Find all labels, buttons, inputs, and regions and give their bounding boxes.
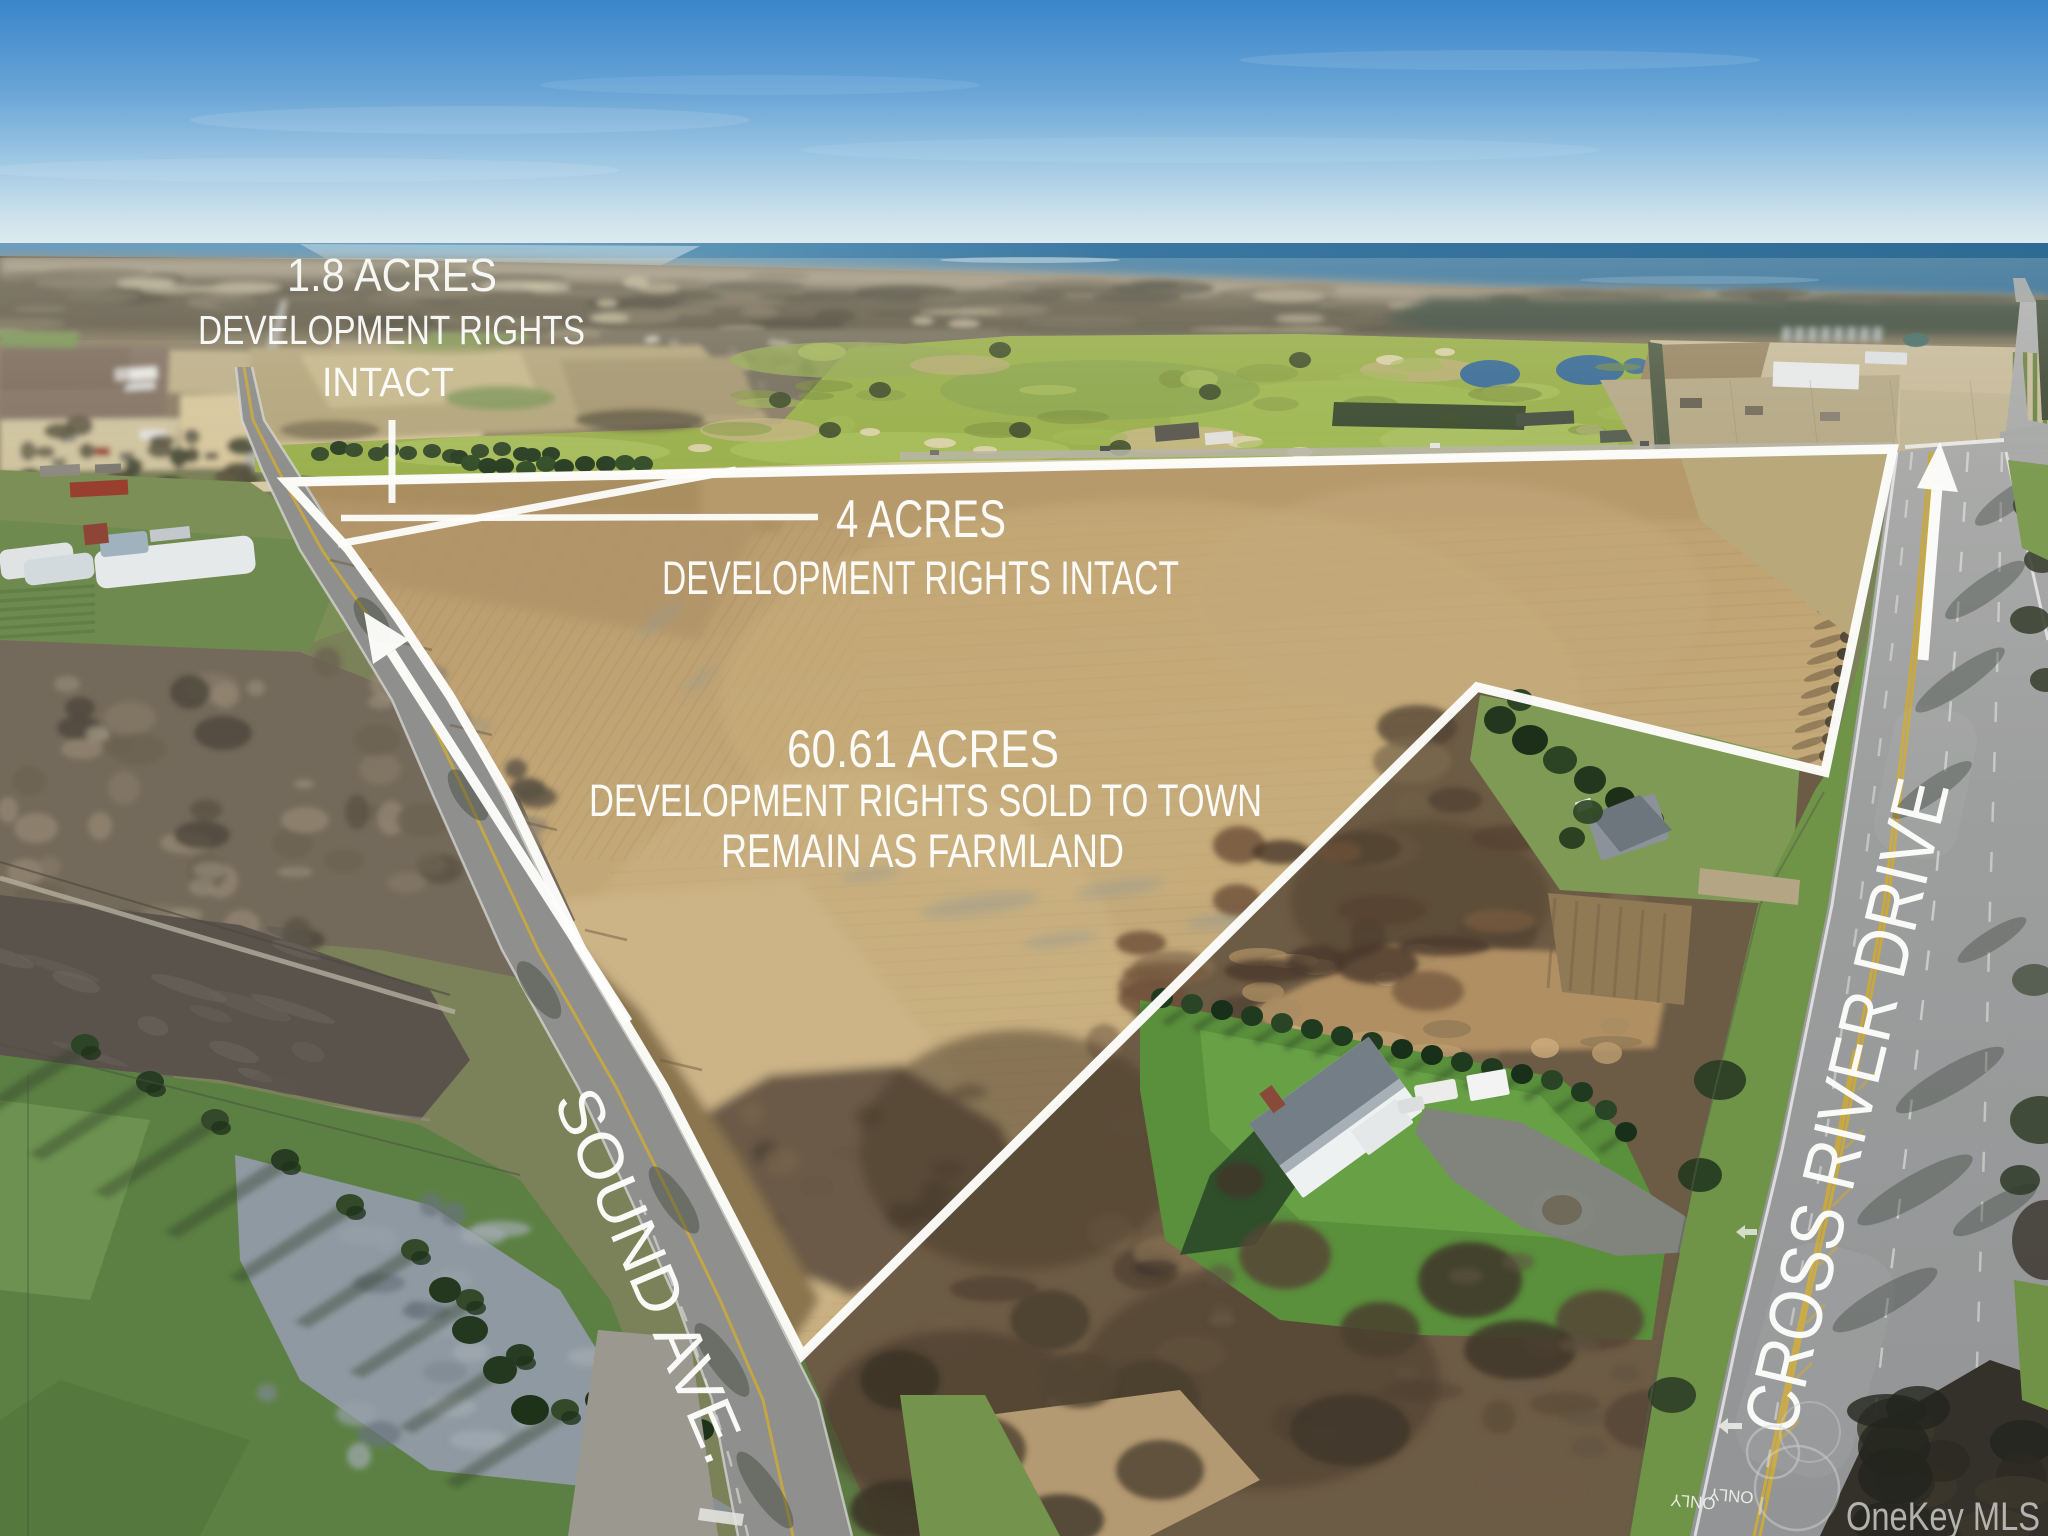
svg-text:60.61 ACRES: 60.61 ACRES xyxy=(787,720,1059,779)
svg-text:4 ACRES: 4 ACRES xyxy=(836,490,1006,549)
svg-text:REMAIN AS FARMLAND: REMAIN AS FARMLAND xyxy=(721,824,1124,877)
svg-text:DEVELOPMENT RIGHTS INTACT: DEVELOPMENT RIGHTS INTACT xyxy=(662,551,1179,604)
svg-text:ONLY: ONLY xyxy=(1708,1484,1755,1507)
svg-text:OneKey MLS: OneKey MLS xyxy=(1846,1495,2040,1536)
svg-text:DEVELOPMENT RIGHTS SOLD TO TOW: DEVELOPMENT RIGHTS SOLD TO TOWN xyxy=(589,775,1262,826)
